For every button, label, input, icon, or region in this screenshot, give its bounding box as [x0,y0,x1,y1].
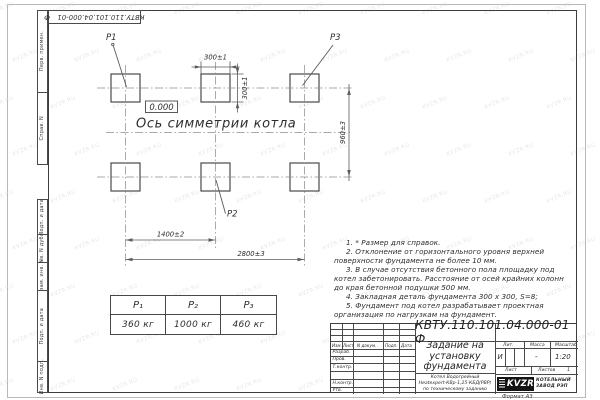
title-block-subtitle: Котел Водогрейный Heatexpert-КВр-1,25-КБ… [415,374,495,394]
load-table-value-p3: 460 кг [221,315,276,334]
load-table-value-p1: 360 кг [111,315,166,334]
arrow [347,89,351,96]
title-block-line [353,324,354,395]
scale-value: 1:20 [555,353,571,361]
load-table-value-p2: 1000 кг [166,315,221,334]
mass-header: Масса [530,343,545,348]
pad-label-p2: Р2 [227,210,238,220]
title-block-line [514,348,515,366]
drawing-sheet-page: { "sheet": { "corner_stamp_doc_number": … [0,0,600,400]
row-label-tkontr: Т.контр. [333,365,353,370]
title-block-line [495,348,578,349]
note-3: 3. В случае отсутствия бетонного пола пл… [334,265,574,292]
sheets-value: 1 [567,368,570,373]
title-block-line [399,324,400,395]
arrow [126,238,133,242]
company-line-2: ЗАВОД РЭП [536,384,578,390]
dim-row-spacing-text: 960±3 [339,121,347,144]
technical-notes: 1. * Размер для справок. 2. Отклонение о… [334,238,574,319]
elevation-mark-value: 0.000 [149,103,173,113]
load-table-header-p3: Р₃ [221,296,276,315]
title-block-doc-title: Задание на установку фундамента [419,342,491,372]
sheet-label: Лист [505,368,517,373]
logo-stripes-icon [499,379,505,389]
dim-total-span-text: 2800±3 [237,250,264,258]
note-2: 2. Отклонение от горизонтального уровня … [334,247,574,265]
pad-load-table: Р₁ Р₂ Р₃ 360 кг 1000 кг 460 кг [110,295,277,335]
arrow [347,170,351,177]
title-block-line [495,374,578,375]
title-block-line [505,348,506,366]
row-label-nkontr: Н.контр. [333,381,354,386]
lit-header: Лит. [503,343,514,348]
title-block-line [531,366,532,374]
sheets-label: Листов [538,368,555,373]
col-header-izm: Изм. [332,343,342,348]
arrow [126,258,133,262]
kvzr-logo: KVZR [497,377,534,391]
col-header-podp: Подп. [385,343,398,348]
col-header-n-dokum: N докум. [357,343,376,348]
row-label-razrab: Разраб. [333,350,351,355]
leader-dot [112,43,114,45]
note-4: 4. Закладная деталь фундамента 300 х 300… [334,292,574,301]
title-block-line [331,335,415,336]
dim-pad-width-text: 300±1 [204,54,227,62]
dim-col-spacing-text: 1400±2 [157,231,184,239]
logo-text: KVZR [507,379,534,389]
load-table-header-p2: Р₂ [166,296,221,315]
col-header-data: Дата [401,343,412,348]
pad-label-p3: Р3 [330,33,341,43]
title-block: Изм. Лист N докум. Подп. Дата Разраб. Пр… [330,323,577,394]
scale-header: Масштаб [555,343,577,348]
dim-pad-height-text: 300±1 [241,77,249,100]
arrow [209,238,216,242]
note-5: 5. Фундамент под котел разрабатывает про… [334,301,574,319]
title-block-doc-number: КВТУ.110.101.04.000-01 Ф [415,324,578,342]
col-header-list: Лист [343,343,354,348]
subtitle-line-3: по техническому заданию [423,387,487,393]
corner-doc-number-stamp: КВТУ.110.101.04.000-01 Ф [48,10,141,24]
arrow [236,102,239,108]
title-block-line [383,324,384,395]
title-block-line [331,387,415,388]
title-block-line [331,329,415,330]
arrow [236,68,239,74]
pad-label-p1: Р1 [106,33,117,43]
row-label-prov: Пров. [333,357,346,362]
arrow [230,65,236,68]
lit-value: И [498,353,503,361]
row-label-utv: Утв. [333,388,343,393]
title-block-line [331,371,415,372]
company-name: КОТЕЛЬНЫЙ ЗАВОД РЭП [536,378,578,391]
load-table-header-p1: Р₁ [111,296,166,315]
format-label: Формат А3 [502,394,533,400]
symmetry-axis-label: Ось симметрии котла [136,117,296,132]
note-1: 1. * Размер для справок. [334,238,574,247]
arrow [195,65,201,68]
arrow [298,258,305,262]
corner-doc-number-text: КВТУ.110.101.04.000-01 Ф [44,13,145,21]
mass-value: - [535,353,538,361]
